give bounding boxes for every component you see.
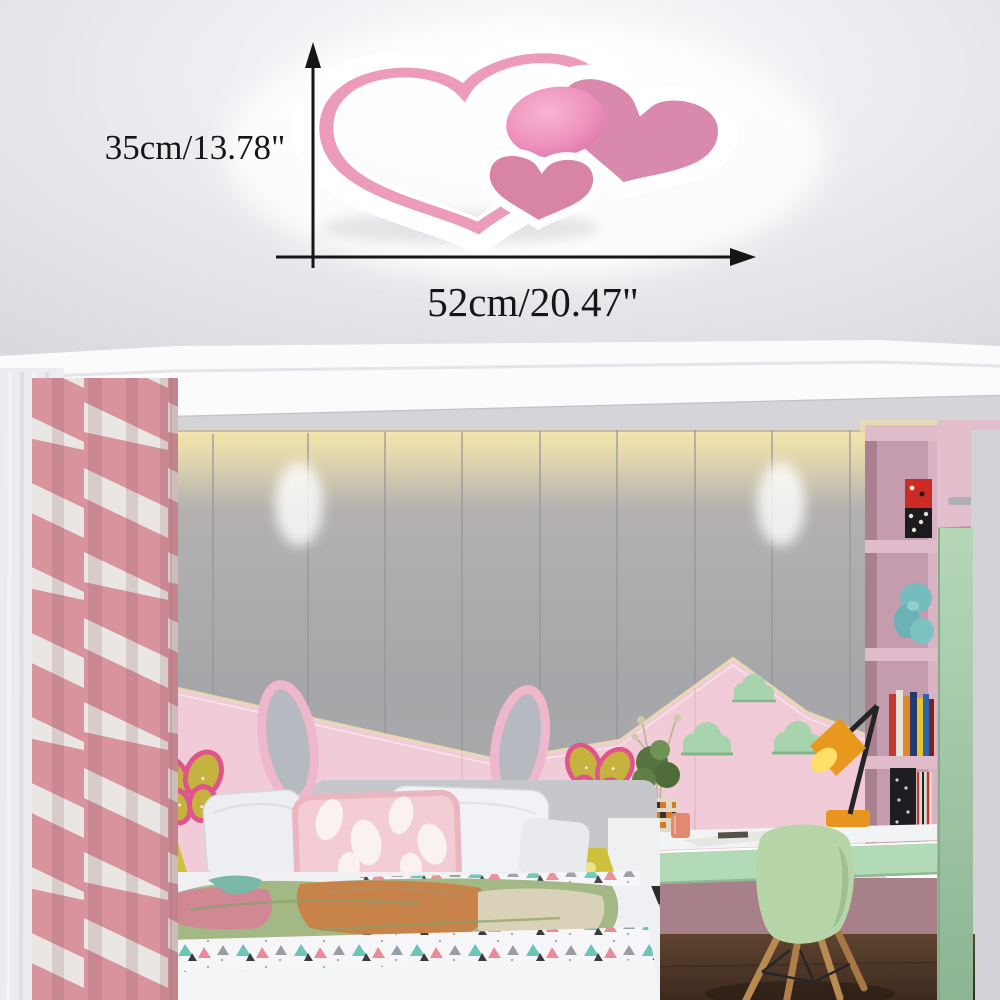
chair-shell	[756, 825, 854, 944]
toy-box	[905, 479, 932, 538]
shelf-slab	[865, 756, 937, 769]
shelf-slab	[865, 540, 937, 553]
wall-spotlight-right	[757, 462, 805, 546]
width-dimension-label: 52cm/20.47"	[373, 278, 693, 326]
shelf-slab	[865, 648, 937, 661]
storage-basket	[890, 768, 932, 832]
wall-spotlight-left	[275, 462, 323, 546]
pillow-white-left	[202, 789, 308, 884]
green-sliding-door	[937, 528, 973, 1000]
height-dimension-label: 35cm/13.78"	[90, 128, 300, 168]
window-curtains	[0, 368, 178, 1000]
cup	[671, 813, 690, 838]
right-wall	[971, 430, 1000, 1000]
bedroom-product-photo: 35cm/13.78" 52cm/20.47"	[0, 0, 1000, 1000]
pillow-white-corner	[517, 817, 591, 882]
books	[889, 690, 934, 756]
